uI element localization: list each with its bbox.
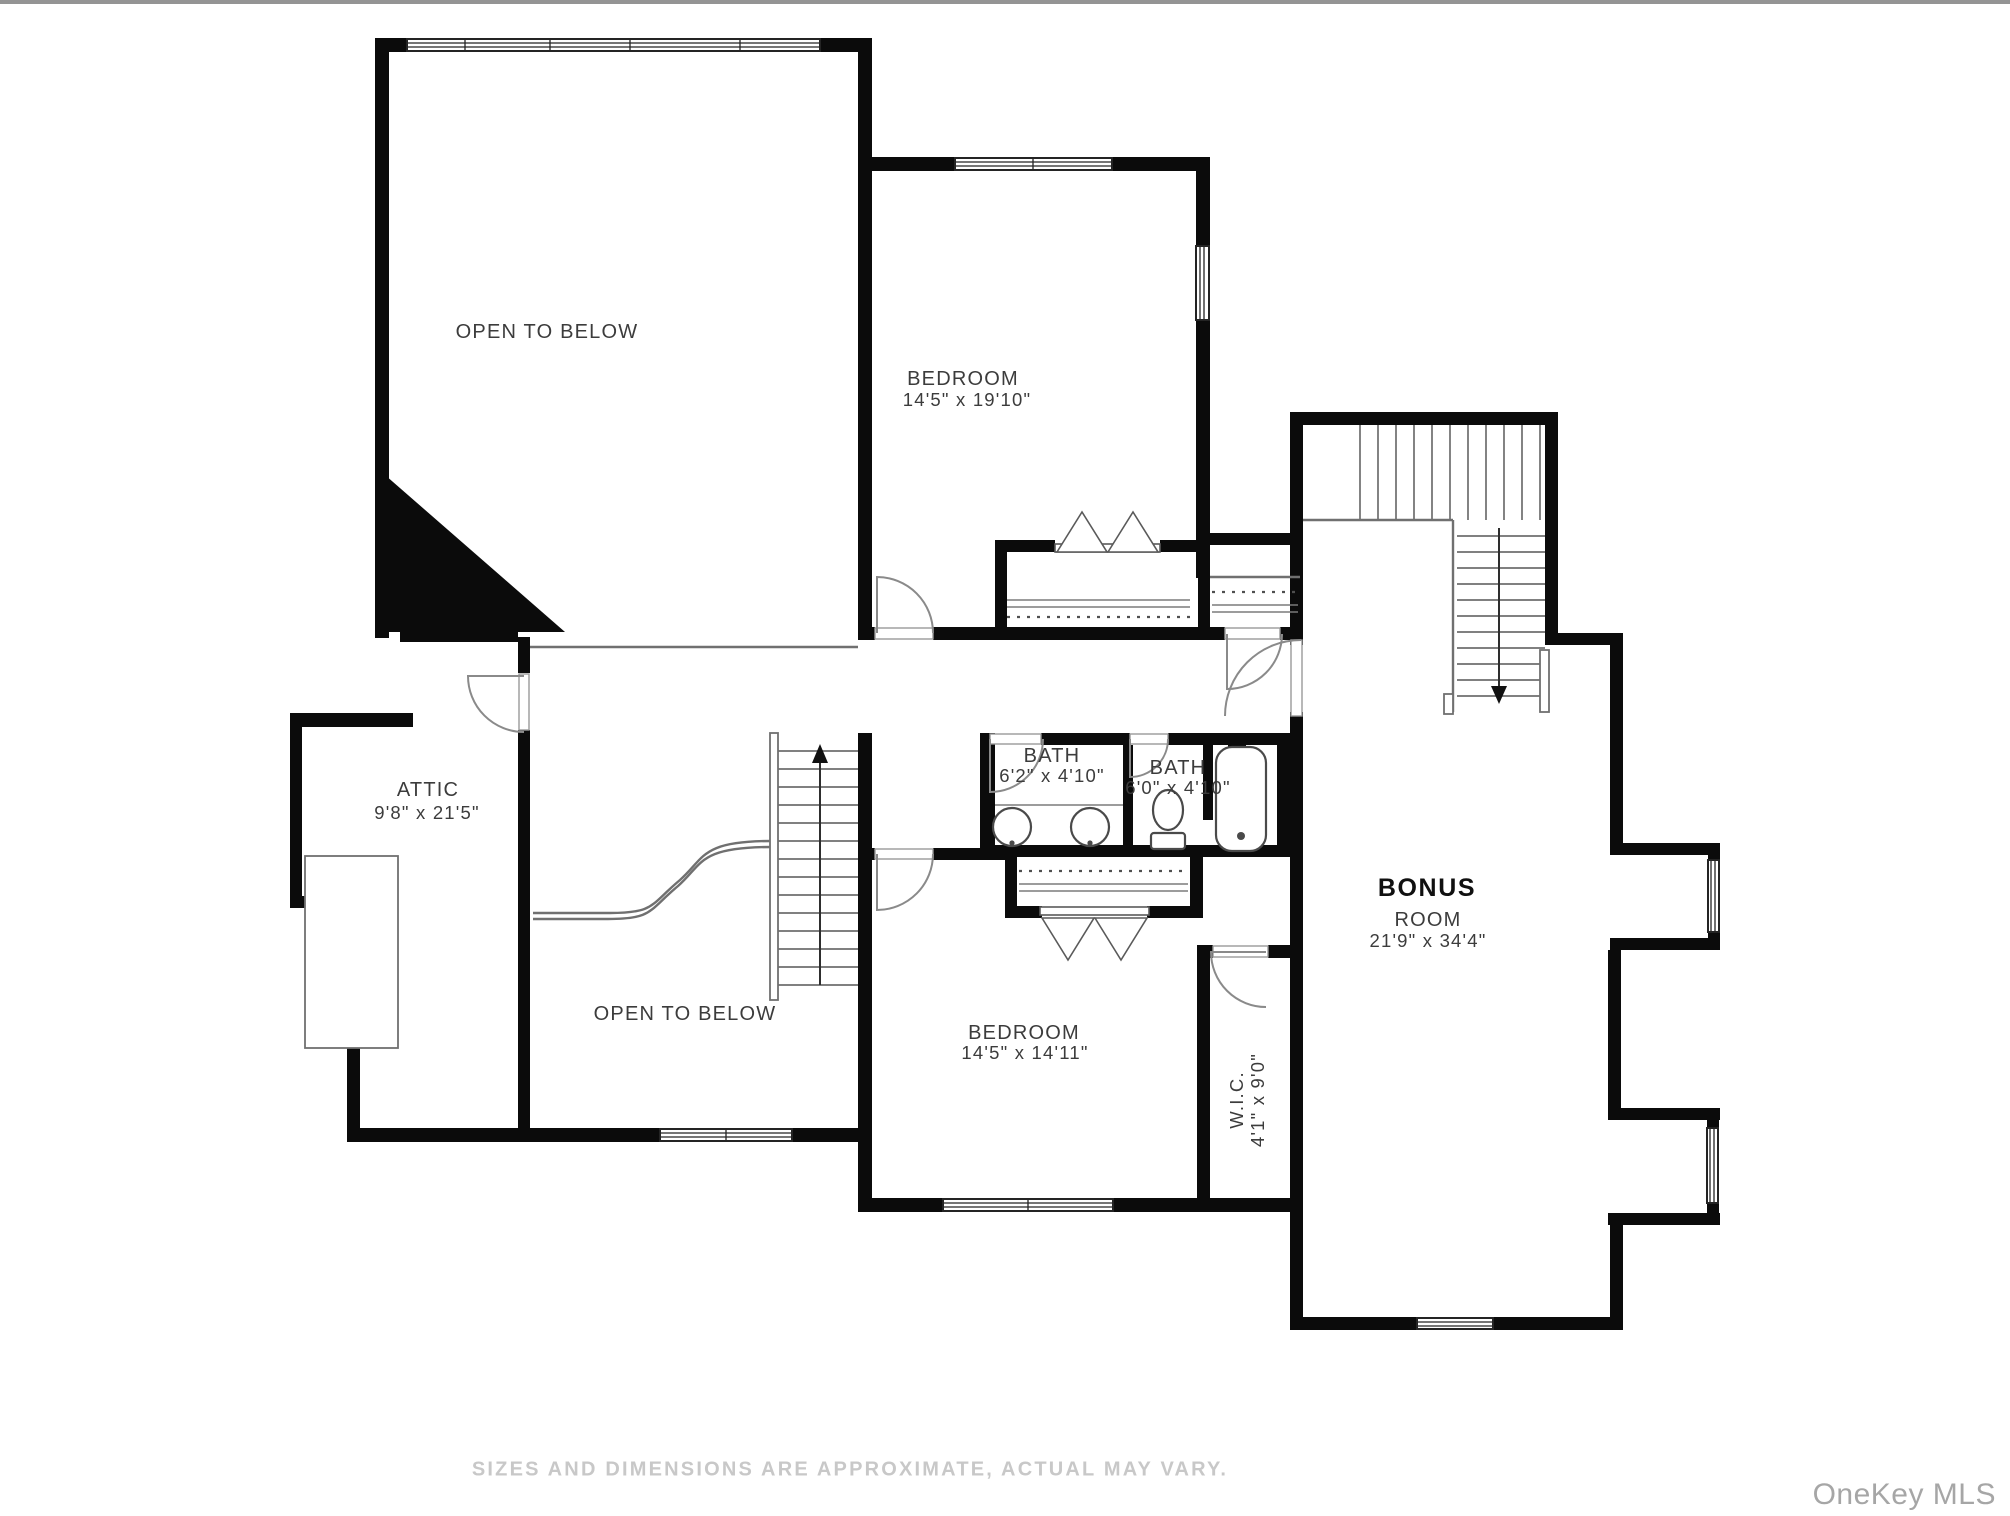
watermark-onekey-mls: OneKey MLS bbox=[1813, 1478, 1996, 1512]
sink-right-faucet bbox=[1087, 840, 1092, 845]
stair-up-arrow bbox=[812, 744, 828, 763]
bonus-stair-upper-treads bbox=[1360, 425, 1540, 520]
main-staircase bbox=[770, 733, 858, 1000]
stair-left-rail bbox=[770, 733, 778, 1000]
closet2-bifold-right bbox=[1095, 918, 1147, 960]
bonus-door-swing bbox=[1225, 640, 1301, 716]
floorplan-page: OPEN TO BELOW BEDROOM 14'5" x 19'10" ATT… bbox=[0, 0, 2010, 1516]
toilet-tank bbox=[1151, 833, 1185, 849]
bath-right-door-opening bbox=[1130, 734, 1168, 744]
label-bedroom-top-dims: 14'5" x 19'10" bbox=[903, 389, 1032, 411]
sink-left-faucet bbox=[1009, 840, 1014, 845]
bedroom-top-door-opening bbox=[875, 628, 933, 639]
bath-left-door-opening bbox=[990, 734, 1041, 744]
wall-segments bbox=[290, 38, 1720, 1330]
bathtub-drain bbox=[1237, 832, 1245, 840]
label-wic-name: W.I.C. bbox=[1226, 1071, 1248, 1129]
stair-treads bbox=[778, 751, 858, 985]
closet2-rod bbox=[1019, 884, 1188, 891]
label-bedroom-top-name: BEDROOM bbox=[907, 367, 1019, 391]
bonus-stair-lower-treads bbox=[1457, 536, 1545, 696]
walls bbox=[290, 38, 1720, 1330]
bedroom-bottom-door-opening bbox=[875, 849, 933, 859]
window-bonus-bay1 bbox=[1708, 860, 1719, 932]
bonus-staircase bbox=[1303, 425, 1549, 714]
label-bath-right-dims: 6'0" x 4'10" bbox=[1125, 777, 1231, 799]
bonus-door-leaf bbox=[1291, 640, 1302, 716]
label-open-to-below-top: OPEN TO BELOW bbox=[456, 320, 639, 344]
label-bonus-dims: 21'9" x 34'4" bbox=[1369, 930, 1486, 952]
label-bonus-name-line1: BONUS bbox=[1378, 873, 1476, 903]
closet2-bifold-track bbox=[1040, 907, 1149, 915]
bedroom-top-door-swing bbox=[877, 577, 933, 633]
attic-door-swing bbox=[468, 676, 524, 732]
sink-left bbox=[993, 808, 1031, 846]
window-bonus-bay2 bbox=[1707, 1128, 1718, 1203]
label-bath-left-dims: 6'2" x 4'10" bbox=[999, 765, 1105, 787]
disclaimer-text: SIZES AND DIMENSIONS ARE APPROXIMATE, AC… bbox=[472, 1459, 1228, 1482]
label-bonus-name-line2: ROOM bbox=[1394, 908, 1461, 932]
sink-right bbox=[1071, 808, 1109, 846]
handrail-curve-upper bbox=[533, 841, 772, 913]
label-attic-name: ATTIC bbox=[397, 778, 459, 802]
wic-door-swing bbox=[1211, 952, 1266, 1007]
window-bonus-bottom bbox=[1417, 1318, 1493, 1329]
roofline-triangle bbox=[377, 468, 565, 632]
closet2-bifold-left bbox=[1042, 918, 1094, 960]
linen-closet-door-opening bbox=[1225, 628, 1280, 639]
label-wic-dims: 4'1" x 9'0" bbox=[1247, 1053, 1269, 1147]
bonus-stair-newel-right bbox=[1540, 650, 1549, 712]
bedroom-bottom-door-swing bbox=[877, 854, 933, 910]
label-bedroom-bottom-dims: 14'5" x 14'11" bbox=[961, 1042, 1088, 1064]
bonus-stair-down-arrow bbox=[1491, 686, 1507, 704]
attic-platform-outline bbox=[305, 856, 398, 1048]
closet1-rod bbox=[1007, 600, 1190, 607]
bonus-stair-newel-left bbox=[1444, 694, 1453, 714]
floorplan-drawing bbox=[0, 0, 2010, 1516]
label-open-to-below-bottom: OPEN TO BELOW bbox=[594, 1002, 777, 1026]
closet1-bifold-left bbox=[1057, 512, 1107, 552]
window-top-left bbox=[407, 39, 820, 51]
linen-closet-door-swing bbox=[1227, 634, 1282, 689]
handrail-curve-lower bbox=[533, 847, 772, 919]
linen-rod bbox=[1212, 605, 1298, 612]
closet1-bifold-right bbox=[1108, 512, 1158, 552]
label-attic-dims: 9'8" x 21'5" bbox=[374, 802, 480, 824]
attic-door-leaf bbox=[519, 674, 529, 730]
window-bedroom-right bbox=[1196, 246, 1209, 320]
